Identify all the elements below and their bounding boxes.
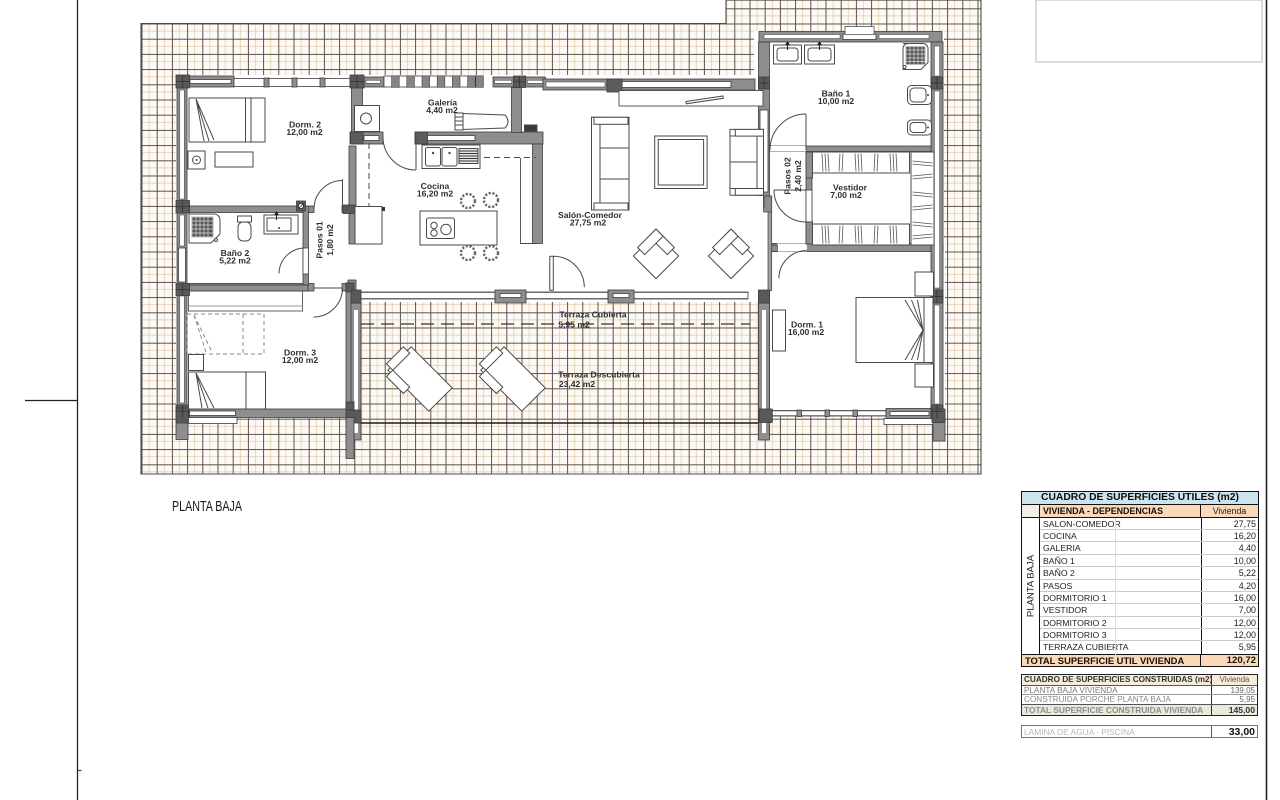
svg-text:PLANTA BAJA: PLANTA BAJA <box>172 499 242 515</box>
svg-text:Terraza Cubierta: Terraza Cubierta <box>559 310 626 320</box>
svg-text:4,40 m2: 4,40 m2 <box>426 105 458 115</box>
svg-text:Pasos 01: Pasos 01 <box>315 221 325 258</box>
svg-text:10,00 m2: 10,00 m2 <box>818 96 855 106</box>
svg-text:23,42 m2: 23,42 m2 <box>559 379 596 389</box>
svg-text:16,00 m2: 16,00 m2 <box>788 327 825 337</box>
svg-text:7,00 m2: 7,00 m2 <box>830 190 862 200</box>
svg-text:Pasos 02: Pasos 02 <box>783 157 793 194</box>
svg-text:16,20 m2: 16,20 m2 <box>417 189 454 199</box>
svg-text:12,00 m2: 12,00 m2 <box>286 127 323 137</box>
svg-text:5,22 m2: 5,22 m2 <box>219 256 251 266</box>
svg-text:27,75 m2: 27,75 m2 <box>570 218 607 228</box>
svg-text:2,40 m2: 2,40 m2 <box>793 160 803 192</box>
svg-text:12,00 m2: 12,00 m2 <box>282 355 319 365</box>
svg-text:1,80 m2: 1,80 m2 <box>325 224 335 256</box>
